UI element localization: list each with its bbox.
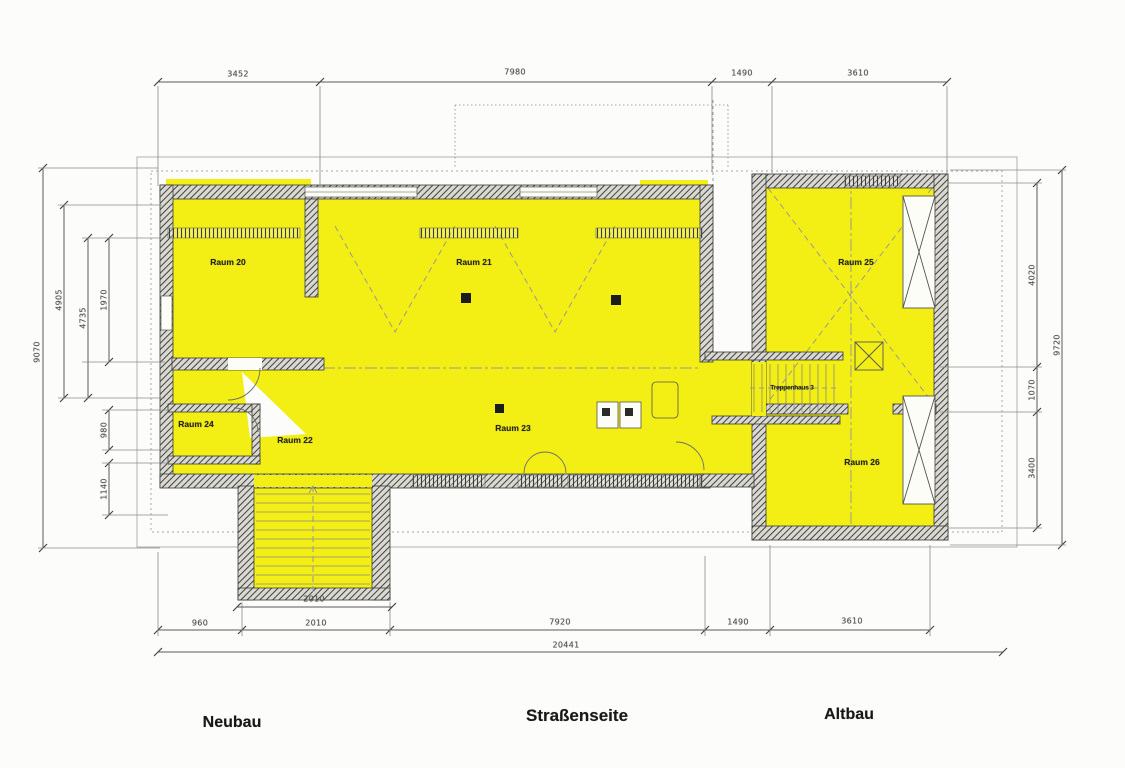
- dim-label-right-2: 1070: [1028, 379, 1037, 401]
- dim-label-left-outer: 9070: [33, 341, 42, 363]
- dim-label-bottom-3: 7920: [549, 618, 571, 627]
- dim-label-top-2: 7980: [504, 68, 526, 77]
- dim-label-bottom-1: 960: [192, 619, 208, 628]
- dim-label-top-3: 1490: [731, 69, 753, 78]
- room-label-raum-26: Raum 26: [844, 457, 879, 467]
- section-label-strassenseite: Straßenseite: [526, 706, 628, 726]
- dim-label-left-4: 980: [100, 422, 109, 438]
- dim-label-bracket: 2010: [303, 595, 325, 604]
- dim-label-left-1: 4905: [55, 289, 64, 311]
- section-label-altbau: Altbau: [824, 706, 874, 724]
- dim-label-top-4: 3610: [847, 69, 869, 78]
- room-label-raum-20: Raum 20: [210, 257, 245, 267]
- room-label-raum-25: Raum 25: [838, 257, 873, 267]
- room-label-raum-21: Raum 21: [456, 257, 491, 267]
- floor-plan-drawing: [0, 0, 1125, 768]
- section-label-neubau: Neubau: [203, 714, 262, 732]
- dim-label-top-1: 3452: [227, 70, 249, 79]
- dim-label-left-2: 4735: [79, 307, 88, 329]
- dim-label-right-1: 4020: [1028, 264, 1037, 286]
- dim-label-bottom-5: 3610: [841, 617, 863, 626]
- room-label-treppenhaus: Treppenhaus 3: [770, 385, 813, 392]
- room-label-raum-22: Raum 22: [277, 435, 312, 445]
- room-label-raum-24: Raum 24: [178, 419, 213, 429]
- dim-label-bottom-4: 1490: [727, 618, 749, 627]
- dim-label-bottom-2: 2010: [305, 619, 327, 628]
- dim-label-left-3: 1970: [100, 289, 109, 311]
- room-label-raum-23: Raum 23: [495, 423, 530, 433]
- floor-plan-page: 3452 7980 1490 3610 960 2010 7920 1490 3…: [0, 0, 1125, 768]
- dim-label-right-outer: 9720: [1053, 334, 1062, 356]
- dim-label-right-3: 3400: [1028, 457, 1037, 479]
- dim-label-left-5: 1140: [100, 478, 109, 500]
- dim-label-total: 20441: [553, 641, 580, 650]
